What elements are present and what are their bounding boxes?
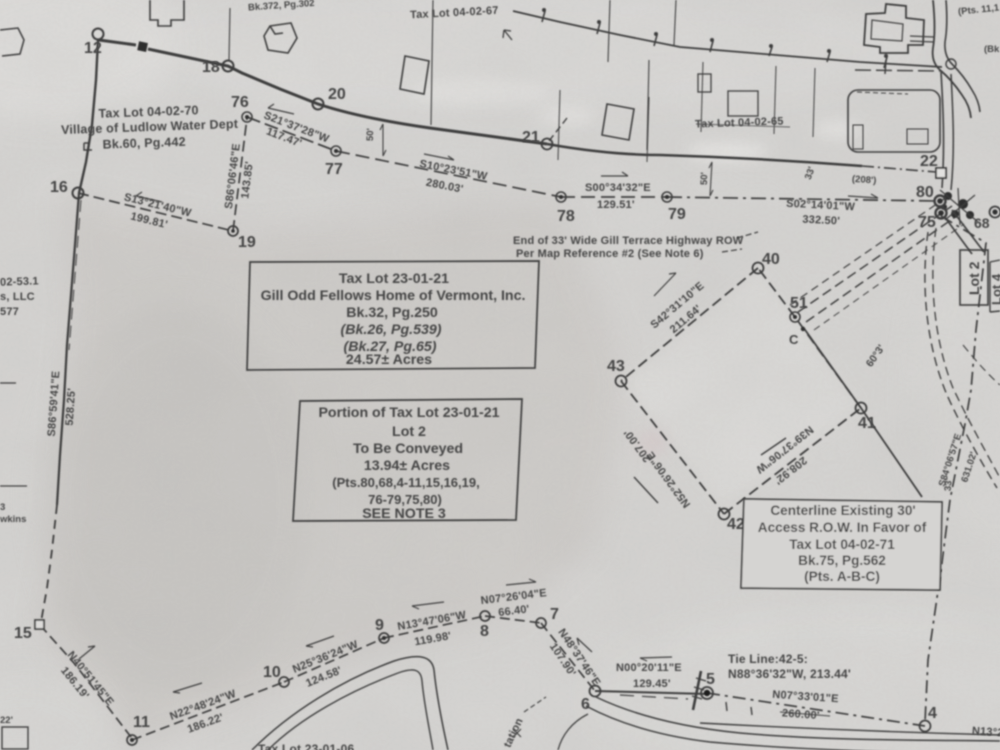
svg-text:wkins: wkins [0,514,26,525]
svg-text:S00°34'32"E: S00°34'32"E [585,182,651,194]
svg-text:10: 10 [263,664,281,681]
svg-text:577: 577 [0,306,19,318]
svg-text:21: 21 [522,129,540,146]
svg-text:9: 9 [375,617,384,634]
svg-text:33': 33' [943,478,955,492]
svg-text:20: 20 [328,86,346,103]
svg-text:13.94± Acres: 13.94± Acres [364,458,450,474]
svg-text:02-53.1: 02-53.1 [0,275,39,288]
svg-text:50': 50' [699,172,710,185]
svg-text:Centerline Existing 30': Centerline Existing 30' [770,503,915,518]
svg-text:Access R.O.W. In Favor of: Access R.O.W. In Favor of [758,520,927,535]
svg-text:C: C [789,332,799,347]
svg-text:68: 68 [974,215,990,231]
svg-text:3: 3 [0,502,5,513]
svg-text:129.51': 129.51' [597,199,635,211]
svg-text:76-79,75,80): 76-79,75,80) [368,492,442,507]
svg-text:6: 6 [581,696,590,713]
svg-text:75: 75 [918,214,936,231]
svg-text:Tax Lot 23-01-06: Tax Lot 23-01-06 [258,742,354,750]
svg-text:22': 22' [0,715,13,726]
svg-text:SEE NOTE 3: SEE NOTE 3 [362,506,446,522]
svg-text:s, LLC: s, LLC [0,291,35,303]
svg-text:332.50': 332.50' [802,214,840,228]
svg-text:(Pts.80,68,4-11,15,16,19,: (Pts.80,68,4-11,15,16,19, [332,475,479,490]
svg-text:(Bk.26, Pg.539): (Bk.26, Pg.539) [341,322,442,338]
svg-text:79: 79 [668,206,686,223]
svg-text:19: 19 [238,234,256,251]
svg-text:50': 50' [365,128,376,141]
svg-text:N88°36'32"W, 213.44': N88°36'32"W, 213.44' [728,667,851,681]
svg-text:N13°2: N13°2 [972,725,1000,739]
svg-text:12: 12 [84,40,102,57]
svg-text:15: 15 [14,625,32,642]
svg-text:4: 4 [928,705,937,722]
svg-text:Portion of Tax Lot 23-01-21: Portion of Tax Lot 23-01-21 [318,405,499,421]
svg-text:76: 76 [231,94,249,111]
svg-text:(Pts. A-B-C): (Pts. A-B-C) [804,569,880,584]
svg-text:41: 41 [858,415,876,432]
svg-text:22: 22 [920,153,938,170]
svg-text:Bk.60, Pg.442: Bk.60, Pg.442 [102,135,186,152]
svg-text:43: 43 [607,358,625,375]
svg-text:Tax Lot 04-02-71: Tax Lot 04-02-71 [789,537,895,552]
svg-text:Lot 4: Lot 4 [989,273,1000,305]
svg-text:51: 51 [790,295,808,312]
svg-text:Lot 2: Lot 2 [392,424,426,440]
svg-text:24.57± Acres: 24.57± Acres [346,352,432,368]
svg-text:Bk.32, Pg.250: Bk.32, Pg.250 [346,305,438,321]
svg-text:Tie Line:42-5:: Tie Line:42-5: [728,652,808,666]
svg-text:80: 80 [916,184,934,201]
svg-text:18: 18 [202,59,220,76]
svg-text:16: 16 [50,179,68,196]
svg-text:77: 77 [325,161,343,178]
svg-text:129.45': 129.45' [633,678,671,690]
svg-text:Gill Odd Fellows Home of Vermo: Gill Odd Fellows Home of Vermont, Inc. [261,288,526,304]
svg-text:To Be Conveyed: To Be Conveyed [353,441,463,457]
svg-text:End of 33' Wide Gill Terrace H: End of 33' Wide Gill Terrace Highway ROW [513,235,744,247]
svg-text:11: 11 [133,714,150,731]
svg-text:Bk.75, Pg.562: Bk.75, Pg.562 [798,553,886,568]
svg-text:5: 5 [706,671,715,688]
svg-text:(Bk: (Bk [984,44,1000,55]
svg-text:8: 8 [480,623,489,640]
svg-text:78: 78 [557,208,575,225]
svg-text:Per Map Reference #2 (See Note: Per Map Reference #2 (See Note 6) [516,248,704,260]
svg-text:7: 7 [550,606,559,623]
svg-text:Lot 2: Lot 2 [966,261,982,295]
svg-text:Tax Lot 23-01-21: Tax Lot 23-01-21 [339,271,449,287]
svg-text:(208'): (208') [852,174,877,187]
svg-text:N00°20'11"E: N00°20'11"E [616,662,682,674]
svg-text:40: 40 [762,251,780,268]
